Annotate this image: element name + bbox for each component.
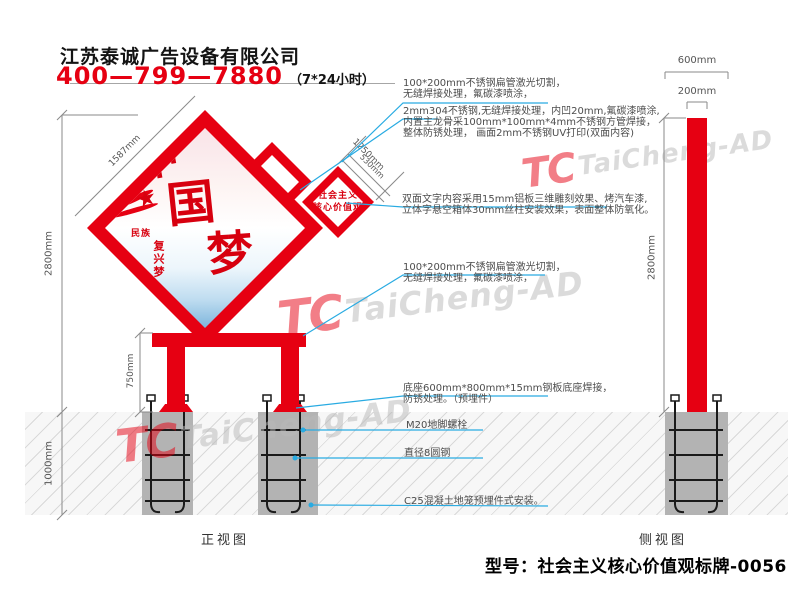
- annotation-carved-text: 双面文字内容采用15mm铝板三维雕刻效果、烤汽车漆, 立体字悬空箱体30mm丝柱…: [402, 194, 654, 216]
- annotation-line: 直径8圆钢: [404, 448, 450, 459]
- annotation-line: 防锈处理。（预埋件）: [403, 394, 612, 405]
- view-label-front: 正视图: [190, 529, 260, 548]
- technical-drawing: 江苏泰诚广告设备有限公司 400—799—7880（7*24小时） TC Tai…: [0, 0, 800, 600]
- annotation-line: C25混凝土地笼预埋件式安装。: [404, 496, 544, 507]
- annotation-line: 立体字悬空箱体30mm丝柱安装效果，表面整体防氧化。: [402, 205, 654, 216]
- annotation-rebar: 直径8圆钢: [404, 448, 450, 459]
- annotation-line: 底座600mm*800mm*15mm钢板底座焊接，: [403, 383, 612, 394]
- model-number: 型号：社会主义核心价值观标牌-0056: [485, 552, 787, 577]
- phone-number: 400—799—7880: [56, 62, 283, 90]
- annotation-line: 2mm304不锈钢,无缝焊接处理，内凹20mm,氟碳漆喷涂,: [403, 106, 660, 117]
- annotation-line: M20地脚螺栓: [406, 420, 467, 431]
- annotation-frame-tube-top: 100*200mm不锈钢扁管激光切割， 无缝焊接处理，氟碳漆喷涂，: [403, 78, 566, 100]
- annotation-line: 内置主龙骨采100mm*100mm*4mm不锈钢方管焊接，: [403, 117, 660, 128]
- annotation-line: 无缝焊接处理，氟碳漆喷涂，: [403, 273, 566, 284]
- annotation-concrete: C25混凝土地笼预埋件式安装。: [404, 496, 544, 507]
- annotation-line: 100*200mm不锈钢扁管激光切割，: [403, 78, 566, 89]
- annotation-line: 无缝焊接处理，氟碳漆喷涂，: [403, 89, 566, 100]
- annotation-frame-tube-stand: 100*200mm不锈钢扁管激光切割， 无缝焊接处理，氟碳漆喷涂，: [403, 262, 566, 284]
- annotation-anchor-bolt: M20地脚螺栓: [406, 420, 467, 431]
- view-label-side: 侧视图: [628, 529, 698, 548]
- annotation-line: 整体防锈处理， 画面2mm不锈钢UV打印(双面内容): [403, 128, 660, 139]
- annotation-leader-lines: [0, 0, 800, 600]
- annotation-main-box: 2mm304不锈钢,无缝焊接处理，内凹20mm,氟碳漆喷涂, 内置主龙骨采100…: [403, 106, 660, 139]
- header-contact: 400—799—7880（7*24小时）: [56, 62, 375, 90]
- annotation-base-plate: 底座600mm*800mm*15mm钢板底座焊接， 防锈处理。（预埋件）: [403, 383, 612, 405]
- annotation-line: 双面文字内容采用15mm铝板三维雕刻效果、烤汽车漆,: [402, 194, 654, 205]
- annotation-line: 100*200mm不锈钢扁管激光切割，: [403, 262, 566, 273]
- service-hours: （7*24小时）: [289, 73, 375, 88]
